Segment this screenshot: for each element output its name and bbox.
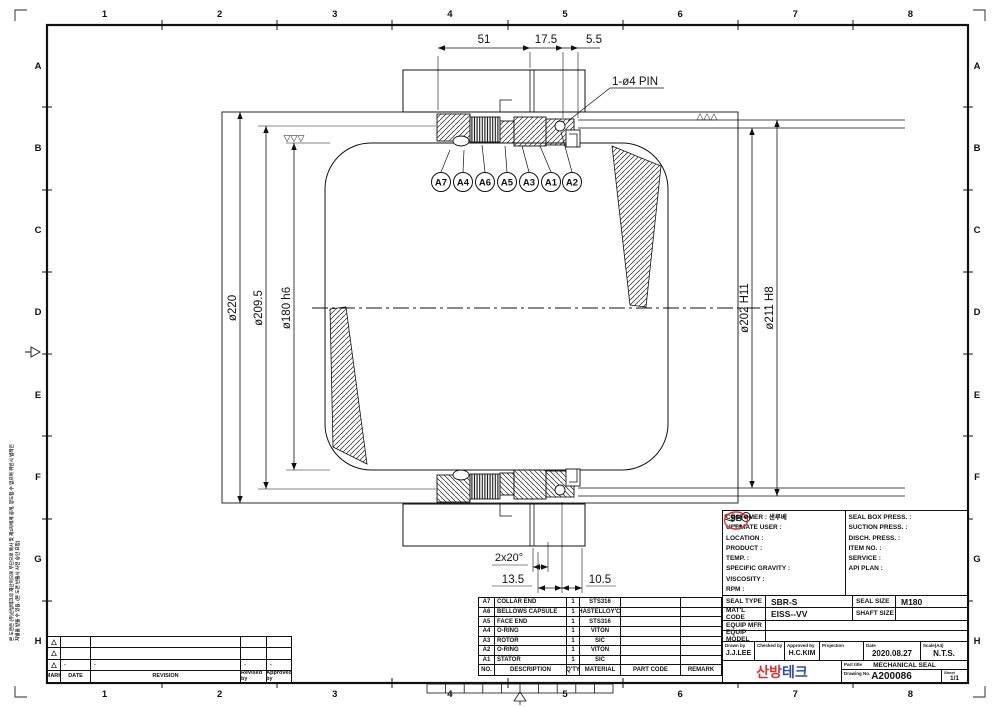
part-code (621, 637, 681, 647)
part-material: VITON (580, 646, 621, 656)
revision-header-approved-by: Approved by (267, 671, 291, 682)
scale-cell: Scale(A4) N.T.S. (921, 642, 967, 660)
dim-220: ø220 (227, 295, 239, 321)
part-description: BELLOWS CAPSULE (495, 608, 567, 618)
part-material: HASTELLOY'C' (580, 608, 621, 618)
date-cell: Date 2020.08.27 (864, 642, 921, 660)
part-material: SIC (580, 656, 621, 666)
dim-211-h8: ø211 H8 (764, 286, 776, 329)
part-remark (681, 656, 721, 666)
field-viscosity: VISCOSITY : (726, 575, 845, 585)
part-qty: 1 (567, 617, 580, 627)
company-logo: SB TECH 산방테크 (723, 661, 842, 682)
part-code (621, 646, 681, 656)
part-description: STATOR (495, 656, 567, 666)
balloon-a7: A7 (435, 178, 447, 189)
part-code (621, 598, 681, 608)
title-block-right-fields: SEAL BOX PRESS. : SUCTION PRESS. : DISCH… (845, 511, 968, 595)
surface-finish-mark-left: ▽▽▽ (284, 133, 305, 143)
field-item-no: ITEM NO. : (849, 544, 968, 554)
field-seal-box-press: SEAL BOX PRESS. : (849, 513, 968, 523)
drawn-by-value: J.J.LEE (723, 648, 754, 660)
revision-mark-icon: △ (48, 637, 61, 648)
part-qty: 1 (567, 598, 580, 608)
part-material: STS316 (580, 598, 621, 608)
balloon-a3: A3 (523, 178, 535, 189)
field-location: LOCATION : (726, 534, 845, 544)
header-part-code: PART CODE (621, 665, 681, 675)
matl-code-label: MAT'L CODE (723, 608, 766, 620)
part-no: A6 (479, 608, 495, 618)
part-remark (681, 627, 721, 637)
part-remark (681, 598, 721, 608)
balloon-a5: A5 (501, 178, 514, 189)
field-disch-press: DISCH. PRESS. : (849, 534, 968, 544)
pin-callout-label: 1-ø4 PIN (612, 76, 658, 88)
balloon-a1: A1 (545, 178, 558, 189)
revision-header-mark: MARK (48, 671, 61, 682)
part-no: A2 (479, 646, 495, 656)
balloon-a6: A6 (479, 178, 491, 189)
revision-mark-icon: △ (48, 648, 61, 659)
seal-size-value: M180 (896, 596, 922, 607)
part-remark (681, 637, 721, 647)
revision-approved-by (267, 637, 291, 648)
logo-name-blue: 테크 (782, 664, 808, 680)
part-qty: 1 (567, 656, 580, 666)
revision-approved-by: - (267, 660, 291, 671)
revision-revised-by (241, 648, 267, 659)
drawing-no-label: Drawing No. (844, 671, 870, 676)
dim-202-h11: ø202 H11 (739, 283, 751, 333)
dim-chamfer: 2x20° (495, 552, 523, 564)
balloon-a2: A2 (566, 178, 578, 189)
title-block: CUSTOMER : 샌루베 ULTIMATE USER : LOCATION … (722, 510, 968, 683)
part-description: ROTOR (495, 637, 567, 647)
header-description: DESCRIPTION (495, 665, 567, 675)
shaft-size-value (896, 608, 901, 620)
part-remark (681, 617, 721, 627)
approved-by-cell: Approved by H.C.KIM (785, 642, 820, 660)
part-description: FACE END (495, 617, 567, 627)
part-remark (681, 608, 721, 618)
projection-cell: Projection (820, 642, 864, 660)
shaft-size-label: SHAFT SIZE (853, 608, 896, 620)
part-material: VITON (580, 627, 621, 637)
field-rpm: RPM : (726, 585, 845, 595)
field-service: SERVICE : (849, 554, 968, 564)
sb-tech-logo-icon: SB TECH (723, 511, 749, 530)
field-specific-gravity: SPECIFIC GRAVITY : (726, 564, 845, 574)
balloon-a4: A4 (457, 178, 470, 189)
scale-value: N.T.S. (921, 648, 967, 660)
part-description: O-RING (495, 627, 567, 637)
field-suction-press: SUCTION PRESS. : (849, 523, 968, 533)
confidentiality-notice: 본 도면은 (주)산방테크의 재산이므로 무단으로 복사 및 제3자에게 공개,… (9, 441, 20, 641)
revision-header-revision: REVISION (91, 671, 241, 682)
sheet-cell: Sheet 1/1 (941, 670, 967, 682)
dim-209-5: ø209.5 (253, 290, 265, 326)
revision-text (91, 648, 241, 659)
part-description: O-RING (495, 646, 567, 656)
sheet-value: 1/1 (942, 675, 967, 682)
dim-5-5: 5.5 (586, 34, 602, 46)
revision-date (61, 648, 91, 659)
revision-revised-by: - (241, 660, 267, 671)
equip-model-value (766, 631, 771, 641)
revision-mark-icon: △ (48, 660, 61, 671)
grid-letters-left: ABCDEFGH (32, 25, 44, 683)
header-qty: Q'TY (567, 665, 580, 675)
revision-table: △ △ △---- MARKDATEREVISIONRevised byAppr… (47, 636, 292, 683)
dim-51: 51 (478, 34, 491, 46)
seal-type-label: SEAL TYPE (723, 596, 766, 607)
field-temp: TEMP. : (726, 554, 845, 564)
logo-sb-text: SB (730, 513, 742, 523)
revision-header-date: DATE (61, 671, 91, 682)
revision-date (61, 637, 91, 648)
part-qty: 1 (567, 637, 580, 647)
equip-mfr-value (766, 621, 771, 630)
part-code (621, 608, 681, 618)
drawing-sheet: 51 17.5 5.5 1-ø4 PIN A7 A4 A6 A5 A3 A1 A… (0, 0, 1000, 707)
header-remark: REMARK (681, 665, 721, 675)
part-material: SIC (580, 637, 621, 647)
dim-180-h6: ø180 h6 (281, 287, 293, 329)
grid-numbers-bottom: 12345678 (47, 689, 968, 700)
part-no: A3 (479, 637, 495, 647)
revision-header-revised-by: Revised by (241, 671, 267, 682)
grid-letters-right: ABCDEFGH (971, 25, 983, 683)
part-remark (681, 646, 721, 656)
part-no: A5 (479, 617, 495, 627)
matl-code-value: EISS--VV (766, 608, 853, 620)
surface-finish-mark-right: △△△ (697, 111, 718, 121)
checked-by-cell: Checked by (755, 642, 785, 660)
dim-10-5: 10.5 (589, 574, 611, 586)
part-title-value: MECHANICAL SEAL (873, 662, 936, 669)
part-no: A1 (479, 656, 495, 666)
dim-13-5: 13.5 (502, 574, 524, 586)
part-material: STS316 (580, 617, 621, 627)
checked-by-value (755, 648, 784, 660)
dim-17-5: 17.5 (535, 34, 557, 46)
equip-model-label: EQUIP MODEL (723, 631, 766, 641)
revision-revised-by (241, 637, 267, 648)
revision-approved-by (267, 648, 291, 659)
field-product: PRODUCT : (726, 544, 845, 554)
drawn-by-cell: Drawn by J.J.LEE (723, 642, 755, 660)
seal-type-value: SBR-S (766, 596, 853, 607)
part-description: COLLAR END (495, 598, 567, 608)
revision-text (91, 637, 241, 648)
part-code (621, 617, 681, 627)
part-code (621, 627, 681, 637)
part-no: A7 (479, 598, 495, 608)
part-qty: 1 (567, 627, 580, 637)
seal-size-label: SEAL SIZE (853, 596, 896, 607)
part-qty: 1 (567, 646, 580, 656)
revision-date: - (61, 660, 91, 671)
date-value: 2020.08.27 (864, 648, 920, 660)
header-no: NO. (479, 665, 495, 675)
part-qty: 1 (567, 608, 580, 618)
approved-by-value: H.C.KIM (785, 648, 819, 660)
grid-numbers-top: 12345678 (47, 9, 968, 20)
field-api-plan: API PLAN : (849, 564, 968, 574)
part-no: A4 (479, 627, 495, 637)
revision-text: - (91, 660, 241, 671)
logo-tech-text: TECH (731, 524, 741, 528)
logo-name-red: 산방 (756, 664, 782, 680)
part-title-label: Part title (844, 662, 862, 667)
part-code (621, 656, 681, 666)
sleeve-outline (325, 143, 668, 470)
header-material: MATERIAL (580, 665, 621, 675)
parts-list-table: A7COLLAR END1STS316 A6BELLOWS CAPSULE1HA… (478, 597, 722, 676)
